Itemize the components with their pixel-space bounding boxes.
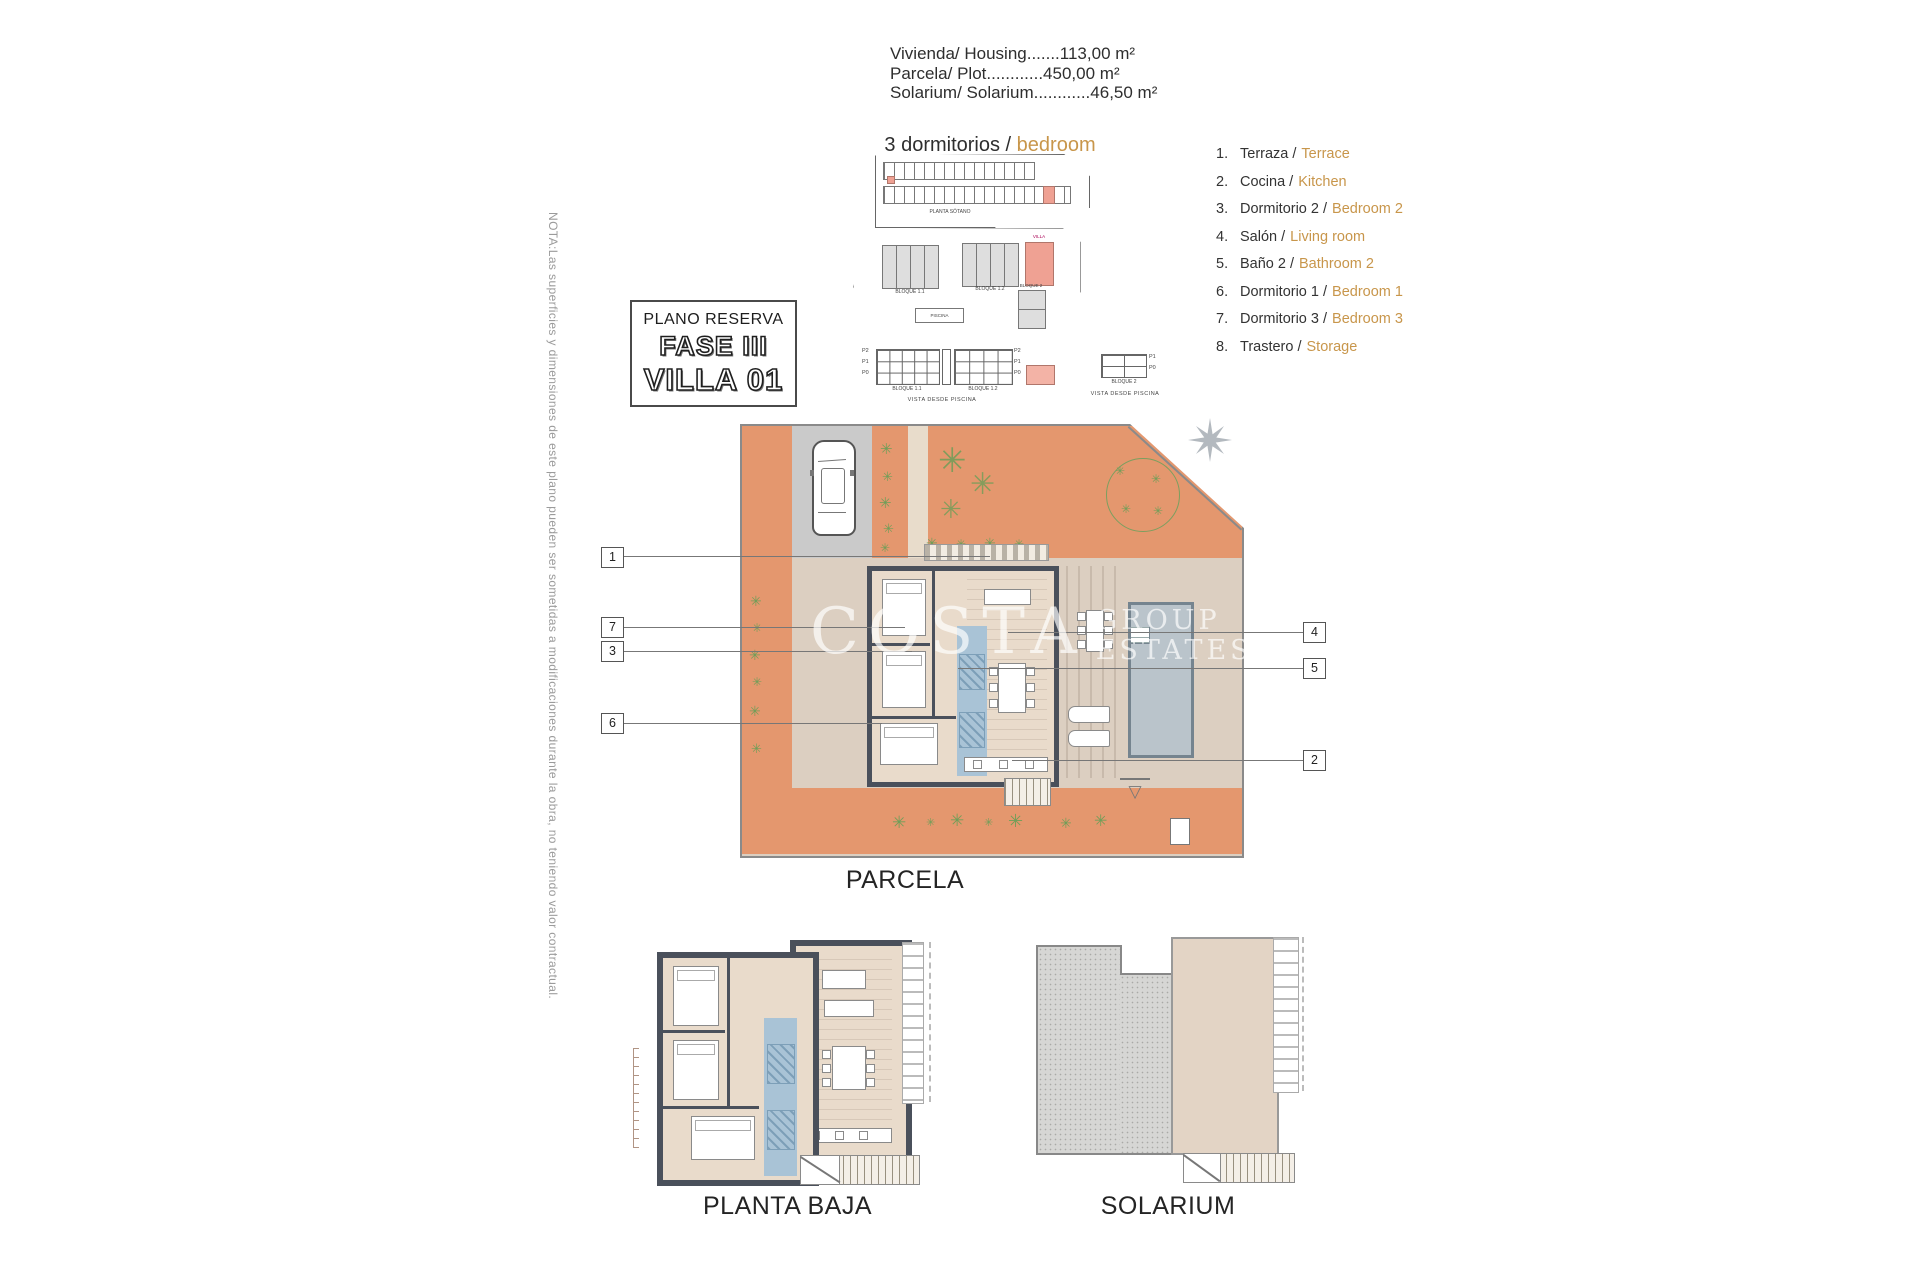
site-unit: [1004, 243, 1019, 287]
site-villa-label: VILLA: [1019, 235, 1059, 240]
legend-item: 7.Dormitorio 3 /Bedroom 3: [1216, 311, 1446, 327]
chair-icon: [822, 1064, 831, 1073]
spec-solarium: Solarium/ Solarium............46,50 m²: [890, 83, 1157, 103]
reserva-title: PLANO RESERVA: [632, 311, 795, 329]
north-arrow-icon: [1188, 418, 1232, 462]
palm-icon: ✳: [1060, 816, 1072, 830]
appliance-icon: [835, 1131, 844, 1140]
palm-icon: ✳: [950, 812, 964, 829]
car-windshield: [818, 459, 846, 462]
surface-specs: Vivienda/ Housing.......113,00 m² Parcel…: [890, 44, 1157, 103]
row-label: P2: [862, 349, 869, 355]
palm-icon: ✳: [1094, 814, 1107, 830]
car-mirror: [850, 470, 854, 476]
bath-hatch: [959, 712, 985, 748]
sun-lounger-icon: [1068, 706, 1110, 723]
site-piscina: PISCINA: [915, 308, 964, 323]
legend-item: 2.Cocina /Kitchen: [1216, 174, 1446, 190]
car-rear-glass: [818, 512, 846, 513]
interior-wall: [663, 1106, 759, 1109]
elevation-grid-bloque12: [954, 349, 1013, 385]
pillow: [677, 1044, 715, 1055]
solarium-stairs: [1183, 1153, 1295, 1183]
callout-bedroom1: 6: [601, 713, 624, 734]
pergola-outline: [1297, 937, 1304, 1091]
palm-icon: ✳: [984, 818, 993, 829]
pillow: [886, 583, 922, 594]
row-label: P0: [1149, 366, 1156, 372]
keyplan-elevation-2: P1 P0 BLOQUE 2 VISTA DESDE PISCINA: [1095, 352, 1180, 407]
watermark-word: COSTA: [810, 600, 1086, 664]
tree-leaf: ✳: [1151, 473, 1161, 485]
leader-line: [1012, 760, 1303, 761]
pergola-battens: [1273, 937, 1299, 1093]
reserva-box: PLANO RESERVA FASE III VILLA 01: [630, 300, 797, 407]
palm-cluster: ✳: [940, 496, 962, 522]
watermark-word: GROUP: [1096, 606, 1253, 636]
site-bloque11-label: BLOQUE 1.1: [875, 290, 945, 295]
elevation-bloque12-label: BLOQUE 1.2: [950, 387, 1016, 392]
appliance-icon: [859, 1131, 868, 1140]
boundary-ruler: [633, 1048, 639, 1148]
spec-housing: Vivienda/ Housing.......113,00 m²: [890, 44, 1157, 64]
callout-bathroom2: 5: [1303, 658, 1326, 679]
elevation-grid-bloque11: [876, 349, 940, 385]
planta-baja-plan: [655, 938, 920, 1188]
elevation-villa-highlight: [1026, 365, 1055, 385]
sun-lounger-icon: [1068, 730, 1110, 747]
watermark: COSTA GROUP ESTATES: [810, 600, 1253, 665]
chair-icon: [822, 1050, 831, 1059]
tree-leaf: ✳: [1121, 503, 1131, 515]
outdoor-fixture: [1170, 818, 1190, 845]
row-label: P2: [1014, 349, 1021, 355]
palm-icon: ✳: [752, 676, 762, 688]
callout-livingroom: 4: [1303, 622, 1326, 643]
bath-hatch: [767, 1110, 795, 1150]
solarium-notch: [1120, 945, 1175, 975]
site-unit: [896, 245, 911, 289]
interior-wall: [872, 716, 956, 719]
palm-icon: ✳: [880, 442, 893, 457]
interior-wall: [663, 1030, 725, 1033]
legend-item: 8.Trastero /Storage: [1216, 339, 1446, 355]
chair-icon: [866, 1078, 875, 1087]
stair-core: [887, 176, 895, 184]
elevation-tower: [942, 349, 951, 385]
site-unit: [882, 245, 897, 289]
pergola-battens: [902, 942, 924, 1104]
site-unit: [1018, 290, 1046, 310]
bed-icon: [691, 1116, 755, 1160]
interior-wall: [727, 958, 730, 1108]
elevation-bloque2-label: BLOQUE 2: [1095, 380, 1153, 385]
bed-icon: [673, 966, 719, 1026]
bed-icon: [880, 723, 938, 765]
solarium-deck: [1036, 945, 1122, 1155]
palm-cluster: ✳: [938, 444, 967, 478]
tree-icon: ✳ ✳ ✳ ✳: [1106, 458, 1180, 532]
palm-icon: ✳: [751, 742, 762, 755]
palm-icon: ✳: [750, 594, 762, 608]
legend-item: 3.Dormitorio 2 /Bedroom 2: [1216, 201, 1446, 217]
site-unit: [1018, 309, 1046, 329]
roof-terrace: [1171, 937, 1279, 1155]
callout-terrace: 1: [601, 547, 624, 568]
chair-icon: [1026, 683, 1035, 692]
row-label: P0: [1014, 371, 1021, 377]
leader-line: [622, 556, 990, 557]
tree-leaf: ✳: [1153, 505, 1163, 517]
dining-table-icon: [832, 1046, 866, 1090]
pergola-slats: [924, 544, 1049, 561]
bath-hatch: [767, 1044, 795, 1084]
chair-icon: [866, 1050, 875, 1059]
highlighted-stall: [1043, 186, 1055, 204]
chair-icon: [989, 683, 998, 692]
planta-baja-caption: PLANTA BAJA: [655, 1192, 920, 1221]
parcela-caption: PARCELA: [740, 866, 1070, 895]
chair-icon: [866, 1064, 875, 1073]
legend-item: 4.Salón /Living room: [1216, 229, 1446, 245]
row-label: P0: [862, 371, 869, 377]
sofa-icon: [824, 1000, 874, 1017]
row-label: P1: [1014, 360, 1021, 366]
parking-stalls-row: [883, 162, 1035, 180]
palm-icon: ✳: [752, 622, 762, 634]
callout-kitchen: 2: [1303, 750, 1326, 771]
palm-icon: ✳: [892, 814, 906, 831]
car-icon: [812, 440, 856, 536]
watermark-word: ESTATES: [1096, 636, 1253, 666]
chair-icon: [1026, 699, 1035, 708]
callout-bedroom3: 7: [601, 617, 624, 638]
car-roof: [821, 468, 845, 504]
bedroom-block: [657, 952, 819, 1186]
room-legend: 1.Terraza /Terrace 2.Cocina /Kitchen 3.D…: [1216, 146, 1446, 366]
leader-line: [622, 723, 882, 724]
pergola-outline: [925, 942, 931, 1102]
vista-caption: VISTA DESDE PISCINA: [882, 398, 1002, 404]
appliance-icon: [973, 760, 982, 769]
legend-item: 1.Terraza /Terrace: [1216, 146, 1446, 162]
basement-caption: PLANTA SÓTANO: [905, 210, 995, 215]
disclaimer-note: NOTA:Las superficies y dimensiones de es…: [546, 212, 560, 922]
car-mirror: [810, 470, 814, 476]
tree-leaf: ✳: [1115, 465, 1125, 477]
appliance-icon: [1025, 760, 1034, 769]
solarium-plan: [1036, 935, 1300, 1185]
elevation-bloque11-label: BLOQUE 1.1: [870, 387, 944, 392]
chair-icon: [822, 1078, 831, 1087]
exterior-stairs: [1004, 778, 1051, 806]
site-unit: [924, 245, 939, 289]
row-label: P1: [862, 360, 869, 366]
palm-icon: ✳: [749, 704, 761, 718]
row-label: P1: [1149, 355, 1156, 361]
bathroom-zone: [764, 1018, 797, 1176]
palm-icon: ✳: [883, 522, 894, 535]
entry-stairs: [800, 1155, 920, 1185]
bed-icon: [673, 1040, 719, 1100]
dining-table-icon: [998, 663, 1026, 713]
site-unit: [962, 243, 977, 287]
palm-icon: ✳: [1008, 812, 1023, 830]
legend-item: 5.Baño 2 /Bathroom 2: [1216, 256, 1446, 272]
pillow: [677, 970, 715, 981]
chair-icon: [989, 699, 998, 708]
reserva-phase: FASE III: [632, 331, 795, 362]
site-unit: [976, 243, 991, 287]
shower-icon: ▽: [1120, 778, 1150, 806]
pillow: [695, 1120, 751, 1131]
palm-cluster: ✳: [970, 470, 995, 500]
palm-icon: ✳: [879, 496, 892, 511]
plan-sheet: NOTA:Las superficies y dimensiones de es…: [0, 0, 1920, 1280]
site-bloque2-label: BLOQUE 2: [1003, 284, 1059, 289]
site-villa-highlight: [1025, 242, 1054, 286]
walkway: [908, 426, 928, 558]
keyplan-elevation-1: P2 P1 P0 P2 P1 P0 BLOQUE 1.1 BLOQUE 1.2 …: [862, 348, 1062, 408]
solarium-caption: SOLARIUM: [1036, 1192, 1300, 1221]
site-unit: [910, 245, 925, 289]
pillow: [884, 727, 934, 738]
spec-plot: Parcela/ Plot............450,00 m²: [890, 64, 1157, 84]
elevation-grid-bloque2: [1101, 354, 1147, 378]
palm-icon: ✳: [926, 818, 935, 829]
reserva-villa: VILLA 01: [632, 362, 795, 398]
palm-icon: ✳: [882, 470, 893, 483]
legend-item: 6.Dormitorio 1 /Bedroom 1: [1216, 284, 1446, 300]
appliance-icon: [999, 760, 1008, 769]
site-unit: [990, 243, 1005, 287]
keyplan-site: BLOQUE 1.1 BLOQUE 1.2 VILLA BLOQUE 2 PIS…: [853, 228, 1081, 346]
kitchen-island: [822, 970, 866, 989]
vista-caption: VISTA DESDE PISCINA: [1087, 392, 1163, 398]
solarium-deck: [1120, 973, 1175, 1155]
callout-bedroom2: 3: [601, 641, 624, 662]
palm-icon: ✳: [880, 542, 890, 554]
